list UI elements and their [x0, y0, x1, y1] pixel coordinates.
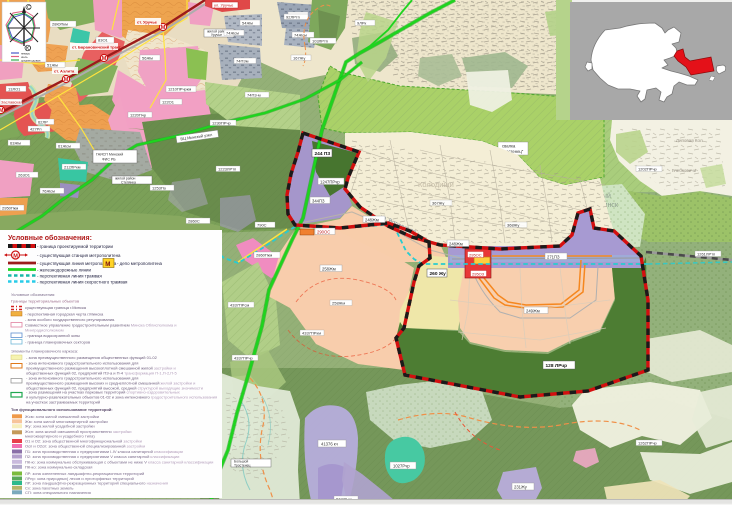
- svg-text:83О1: 83О1: [98, 38, 109, 43]
- svg-text:М: М: [64, 77, 69, 83]
- svg-text:- граница планировочных сектор: - граница планировочных секторов: [25, 340, 90, 345]
- svg-text:ГАИСП Минский: ГАИСП Минский: [96, 153, 123, 157]
- svg-text:- граница водоохранной зоны: - граница водоохранной зоны: [25, 333, 80, 338]
- svg-text:ул. Уручье: ул. Уручье: [214, 3, 234, 8]
- svg-text:1262ПРчр: 1262ПРчр: [638, 441, 658, 446]
- svg-text:76Жсм: 76Жсм: [42, 189, 55, 194]
- svg-text:54Жм: 54Жм: [242, 21, 253, 26]
- svg-text:62ЛР: 62ЛР: [38, 120, 48, 125]
- svg-text:ст. Аэлита: ст. Аэлита: [54, 69, 75, 74]
- svg-text:1247ПРчр: 1247ПРчр: [320, 180, 340, 185]
- svg-text:1210ПРчркм: 1210ПРчркм: [168, 87, 192, 92]
- svg-text:на участках застраиваемых терр: на участках застраиваемых территорий: [26, 400, 100, 405]
- svg-text:- железнодорожные линии: - железнодорожные линии: [37, 268, 92, 273]
- svg-text:290ОС: 290ОС: [317, 230, 330, 235]
- svg-text:231Жу: 231Жу: [514, 485, 528, 490]
- svg-text:244 ПЗ: 244 ПЗ: [315, 151, 331, 157]
- svg-text:258Жм: 258Жм: [332, 301, 345, 306]
- svg-text:С: С: [27, 5, 31, 11]
- svg-text:свалка: свалка: [502, 144, 516, 149]
- svg-text:М: М: [161, 25, 166, 31]
- svg-text:Глебковичи: Глебковичи: [672, 168, 697, 173]
- svg-text:263О1: 263О1: [18, 173, 31, 178]
- svg-text:260 Жу: 260 Жу: [430, 271, 447, 277]
- svg-text:существующая граница г.Минска: существующая граница г.Минска: [25, 305, 87, 310]
- svg-text:212ЛРкм: 212ЛРкм: [64, 165, 81, 170]
- svg-text:ПК-ко: зона коммунально-складс: ПК-ко: зона коммунально-складская: [25, 464, 92, 469]
- svg-text:122О1: 122О1: [162, 100, 175, 105]
- svg-text:1027Рчр: 1027Рчр: [393, 464, 410, 469]
- svg-text:368Жу: 368Жу: [507, 223, 519, 228]
- svg-text:1202ПРчр: 1202ПРчр: [638, 167, 658, 172]
- svg-text:248Жм: 248Жм: [449, 242, 463, 247]
- svg-text:ФИС РБ: ФИС РБ: [102, 158, 116, 162]
- svg-text:ст. Уручье: ст. Уручье: [137, 20, 158, 25]
- svg-text:Степянка: Степянка: [121, 180, 136, 184]
- svg-text:790С: 790С: [257, 223, 267, 228]
- svg-text:- существующая станция метропо: - существующая станция метрополитена: [37, 253, 121, 258]
- svg-text:249Жм: 249Жм: [526, 309, 540, 314]
- svg-text:74Жсм: 74Жсм: [294, 33, 307, 38]
- svg-text:63Жм: 63Жм: [10, 141, 21, 146]
- svg-text:271ПЗ: 271ПЗ: [547, 255, 560, 260]
- svg-text:295ОЗ: 295ОЗ: [472, 271, 485, 276]
- svg-text:- зона преимущественного разме: - зона преимущественного размещения обще…: [26, 355, 158, 360]
- svg-text:СП: зона специального назначен: СП: зона специального назначения: [25, 490, 91, 495]
- svg-text:248Жм: 248Жм: [365, 218, 379, 223]
- svg-text:Элементы планировочного каркас: Элементы планировочного каркаса:: [11, 349, 78, 354]
- svg-text:Осп и О2сп: зона общественной: Осп и О2сп: зона общественной специализи…: [25, 444, 145, 449]
- svg-text:128 ЛРчр: 128 ЛРчр: [546, 363, 568, 369]
- svg-text:М: М: [13, 253, 18, 259]
- svg-text:367Жу: 367Жу: [432, 201, 444, 206]
- svg-text:среднегодовая: среднегодовая: [21, 59, 41, 63]
- svg-text:Условные обозначения:: Условные обозначения:: [8, 234, 92, 242]
- svg-text:56Жм: 56Жм: [142, 56, 153, 61]
- svg-text:Минградисполкомом: Минградисполкомом: [25, 328, 64, 333]
- svg-text:74П3-м: 74П3-м: [247, 93, 261, 98]
- svg-text:Тростенец: Тростенец: [234, 463, 251, 467]
- svg-text:4337ПРкм: 4337ПРкм: [302, 331, 321, 336]
- svg-text:1253По: 1253По: [152, 186, 167, 191]
- svg-text:- граница проектируемой террит: - граница проектируемой территории: [37, 244, 114, 249]
- svg-text:167Жу: 167Жу: [293, 56, 305, 61]
- svg-text:Условные обозначения:: Условные обозначения:: [11, 292, 55, 297]
- svg-text:Границы территориальных объект: Границы территориальных объектов: [11, 299, 79, 304]
- svg-text:Заславская: Заславская: [1, 100, 23, 105]
- svg-text:М: М: [105, 261, 110, 268]
- svg-text:61Жсм: 61Жсм: [58, 144, 71, 149]
- svg-text:М: М: [0, 108, 4, 114]
- svg-text:Уручье: Уручье: [211, 33, 222, 37]
- svg-text:Колодищи: Колодищи: [418, 180, 454, 189]
- svg-text:М: М: [102, 56, 107, 62]
- svg-text:344ПЗ: 344ПЗ: [312, 199, 325, 204]
- svg-text:295ОС: 295ОС: [469, 252, 482, 257]
- svg-text:ст. Барановичский тракт: ст. Барановичский тракт: [72, 45, 121, 50]
- svg-text:4337ПРсм: 4337ПРсм: [230, 303, 249, 308]
- svg-text:74ПЗм: 74ПЗм: [236, 59, 249, 64]
- svg-text:2860С: 2860С: [188, 219, 200, 224]
- svg-text:51Жм: 51Жм: [47, 63, 58, 68]
- svg-text:Тип функционального использова: Тип функционального использование террит…: [11, 407, 113, 412]
- svg-text:28ЮПкм: 28ЮПкм: [52, 22, 68, 27]
- svg-text:Липовая Кол: Липовая Кол: [676, 138, 703, 143]
- svg-text:103ЛРтп: 103ЛРтп: [312, 39, 328, 44]
- svg-text:П2: зона производственная с пр: П2: зона производственная с предприятиям…: [25, 454, 179, 459]
- svg-text:4337ПРчр: 4337ПРчр: [234, 356, 254, 361]
- svg-text:- зона особого государственног: - зона особого государственного регулиро…: [25, 317, 115, 322]
- svg-text:427Рп: 427Рп: [30, 127, 42, 132]
- svg-text:- перспективная городская черт: - перспективная городская черта г.Минска: [25, 312, 104, 317]
- svg-text:74Жсм: 74Жсм: [226, 31, 239, 36]
- svg-text:1223ЛРтп: 1223ЛРтп: [218, 167, 236, 172]
- svg-text:1230ПРчр: 1230ПРчр: [212, 121, 232, 126]
- svg-text:- перспективная линия трамвая: - перспективная линия трамвая: [37, 274, 102, 279]
- svg-text:- депо метрополитена: - депо метрополитена: [117, 261, 162, 266]
- svg-text:- перспективная линия скоростн: - перспективная линия скоростного трамва…: [37, 280, 128, 285]
- svg-text:1220Пчр: 1220Пчр: [130, 113, 147, 118]
- svg-text:2950Пкм: 2950Пкм: [2, 206, 19, 211]
- svg-text:2860Пкм: 2860Пкм: [256, 253, 273, 258]
- svg-text:13ЛО1: 13ЛО1: [8, 87, 21, 92]
- svg-text:1261ЛРтп: 1261ЛРтп: [697, 252, 715, 257]
- svg-text:92ЛРтп: 92ЛРтп: [286, 15, 300, 20]
- svg-text:258Жм: 258Жм: [322, 267, 336, 272]
- svg-text:9ЛРк: 9ЛРк: [357, 21, 367, 26]
